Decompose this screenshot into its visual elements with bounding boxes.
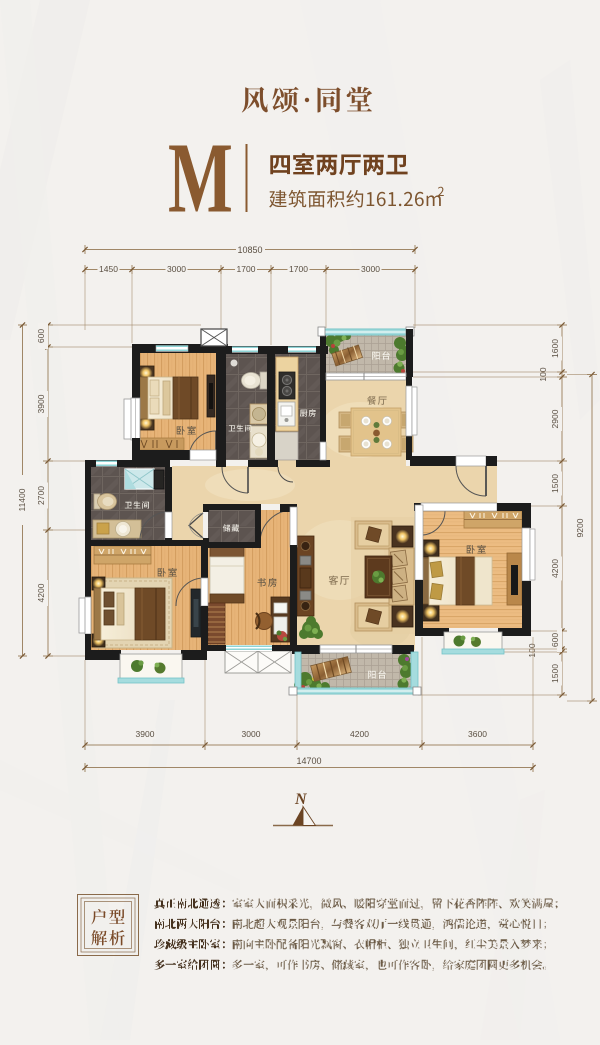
svg-text:100: 100 [538, 367, 548, 381]
svg-text:10850: 10850 [237, 245, 262, 255]
svg-text:2700: 2700 [36, 486, 46, 505]
svg-text:9200: 9200 [575, 518, 585, 537]
svg-text:1700: 1700 [237, 264, 256, 274]
svg-text:3600: 3600 [468, 729, 487, 739]
svg-text:3000: 3000 [167, 264, 186, 274]
svg-text:4200: 4200 [36, 583, 46, 602]
svg-text:600: 600 [550, 633, 560, 647]
svg-text:1500: 1500 [550, 474, 560, 493]
svg-text:2900: 2900 [550, 409, 560, 428]
svg-text:4200: 4200 [350, 729, 369, 739]
svg-text:3900: 3900 [36, 394, 46, 413]
svg-text:M: M [168, 121, 233, 233]
svg-text:3000: 3000 [242, 729, 261, 739]
svg-text:1450: 1450 [99, 264, 118, 274]
svg-text:1700: 1700 [289, 264, 308, 274]
svg-text:100: 100 [527, 643, 537, 657]
svg-text:3900: 3900 [136, 729, 155, 739]
svg-text:N: N [294, 791, 308, 808]
svg-text:1600: 1600 [550, 339, 560, 358]
svg-text:600: 600 [36, 329, 46, 343]
svg-text:11400: 11400 [17, 488, 27, 511]
svg-text:3000: 3000 [361, 264, 380, 274]
svg-text:4200: 4200 [550, 559, 560, 578]
svg-text:14700: 14700 [296, 756, 321, 766]
svg-text:1500: 1500 [550, 664, 560, 683]
